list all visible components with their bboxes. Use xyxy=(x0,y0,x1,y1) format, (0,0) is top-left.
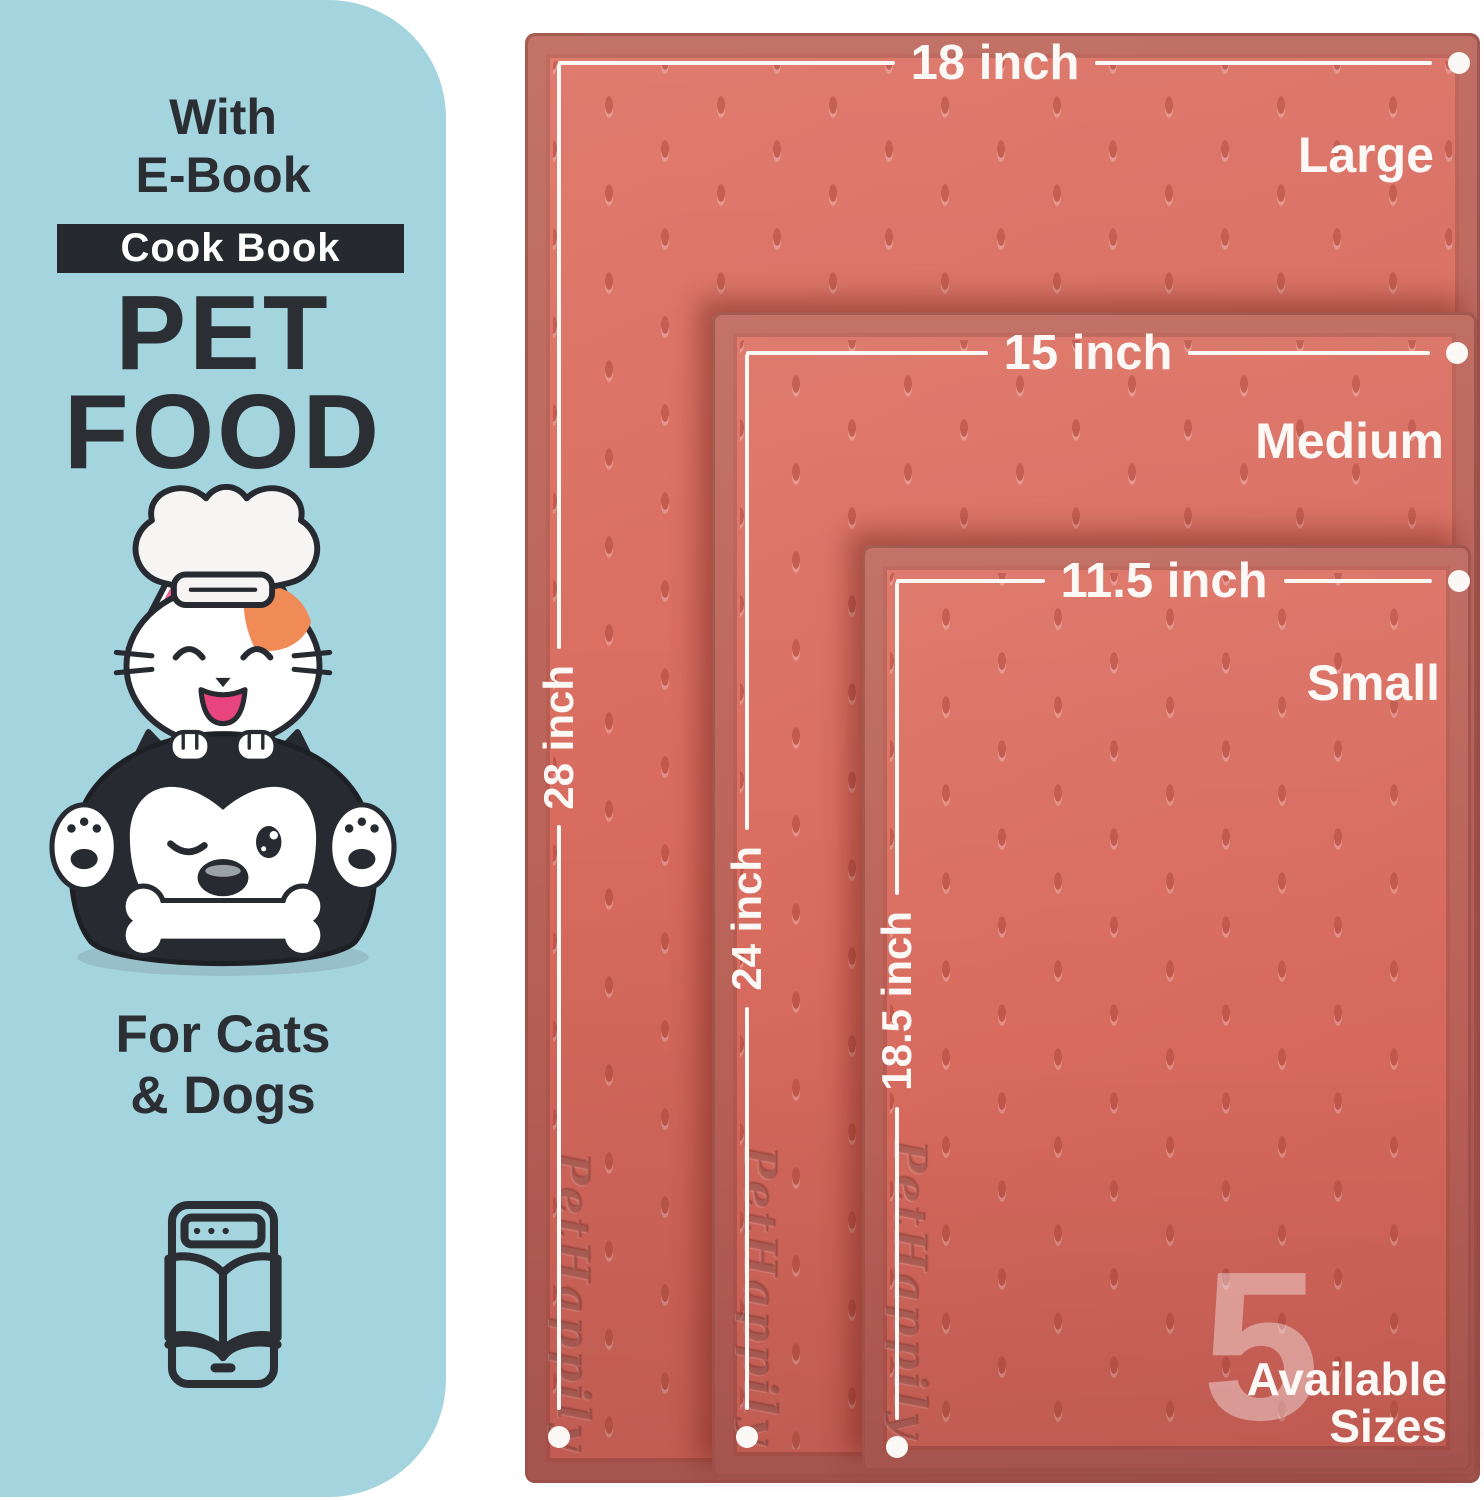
height-dimension-small: 18.5 inch xyxy=(871,582,923,1458)
dimension-endpoint-dot xyxy=(548,1426,570,1448)
dimension-line xyxy=(1188,351,1430,355)
available-sizes-line1: Available xyxy=(1247,1356,1447,1403)
left-panel: With E-Book Cook Book PET FOOD xyxy=(0,0,446,1497)
dimension-line xyxy=(557,64,561,649)
dimension-endpoint-dot xyxy=(736,1426,758,1448)
width-dimension-medium: 15 inch xyxy=(746,327,1468,379)
height-label-medium: 24 inch xyxy=(723,846,771,991)
ebook-callout-line2: E-Book xyxy=(0,146,446,204)
dimension-line xyxy=(1095,61,1432,65)
width-dimension-large: 18 inch xyxy=(558,37,1470,89)
page-title: PET FOOD xyxy=(0,284,446,481)
available-sizes-line2: Sizes xyxy=(1247,1403,1447,1450)
size-name-medium: Medium xyxy=(1255,412,1444,470)
height-label-large: 28 inch xyxy=(535,665,583,810)
width-label-medium: 15 inch xyxy=(1004,325,1173,381)
size-name-small: Small xyxy=(1307,654,1440,712)
dimension-line xyxy=(895,582,899,895)
dimension-line xyxy=(1284,579,1433,583)
dimension-line xyxy=(558,61,895,65)
dimension-endpoint-dot xyxy=(1448,52,1470,74)
product-infographic: With E-Book Cook Book PET FOOD xyxy=(0,0,1484,1500)
ebook-tablet-icon xyxy=(138,1196,308,1393)
dimension-line xyxy=(557,825,561,1410)
cookbook-badge: Cook Book xyxy=(57,224,404,273)
page-title-line1: PET xyxy=(0,284,446,383)
audience-text: For Cats & Dogs xyxy=(0,1004,446,1127)
available-sizes-text: Available Sizes xyxy=(1247,1356,1447,1450)
dimension-line xyxy=(746,351,988,355)
dimension-line xyxy=(895,1107,899,1420)
size-name-large: Large xyxy=(1298,126,1434,184)
audience-line1: For Cats xyxy=(0,1004,446,1065)
width-label-small: 11.5 inch xyxy=(1061,553,1268,609)
audience-line2: & Dogs xyxy=(0,1065,446,1126)
dimension-line xyxy=(745,354,749,830)
dimension-endpoint-dot xyxy=(1448,570,1470,592)
dimension-endpoint-dot xyxy=(886,1436,908,1458)
chef-cat-and-husky-illustration xyxy=(45,478,401,986)
height-dimension-medium: 24 inch xyxy=(721,354,773,1448)
dimension-endpoint-dot xyxy=(1446,342,1468,364)
ebook-callout: With E-Book xyxy=(0,88,446,204)
page-title-line2: FOOD xyxy=(0,383,446,482)
height-label-small: 18.5 inch xyxy=(873,911,921,1091)
height-dimension-large: 28 inch xyxy=(533,64,585,1448)
width-label-large: 18 inch xyxy=(911,35,1080,91)
dimension-line xyxy=(745,1007,749,1410)
ebook-callout-line1: With xyxy=(0,88,446,146)
width-dimension-small: 11.5 inch xyxy=(896,555,1470,607)
